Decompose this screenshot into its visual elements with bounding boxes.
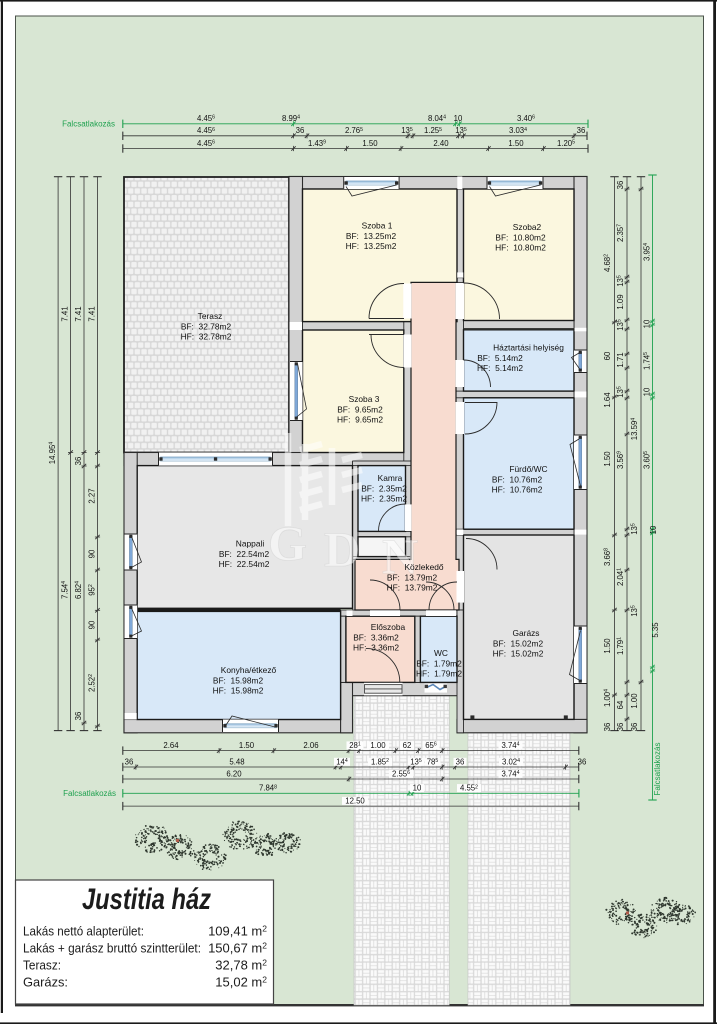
svg-text:HF: 1.79m2: HF: 1.79m2 bbox=[416, 669, 462, 679]
svg-text:36: 36 bbox=[74, 712, 83, 721]
svg-text:BF: 15.98m2: BF: 15.98m2 bbox=[213, 675, 264, 685]
svg-text:7.41: 7.41 bbox=[88, 306, 97, 321]
svg-text:90: 90 bbox=[88, 620, 97, 629]
svg-text:Nappali: Nappali bbox=[236, 539, 265, 549]
svg-text:5.35: 5.35 bbox=[651, 622, 660, 638]
svg-text:36: 36 bbox=[616, 181, 625, 190]
svg-text:G: G bbox=[268, 515, 307, 571]
svg-text:Kamra: Kamra bbox=[378, 473, 403, 483]
svg-text:HF: 5.14m2: HF: 5.14m2 bbox=[477, 363, 523, 373]
svg-text:36: 36 bbox=[578, 757, 587, 766]
svg-text:Falcsatlakozás: Falcsatlakozás bbox=[653, 743, 662, 796]
svg-text:150,67 m2: 150,67 m2 bbox=[208, 941, 267, 956]
svg-text:10: 10 bbox=[413, 784, 422, 793]
svg-text:32,78 m2: 32,78 m2 bbox=[215, 958, 267, 973]
svg-text:BF: 32.78m2: BF: 32.78m2 bbox=[181, 321, 232, 331]
svg-text:Konyha/étkező: Konyha/étkező bbox=[221, 665, 277, 675]
svg-text:HF: 9.65m2: HF: 9.65m2 bbox=[337, 415, 383, 425]
svg-text:Fürdő/WC: Fürdő/WC bbox=[509, 464, 547, 474]
svg-text:HF: 10.80m2: HF: 10.80m2 bbox=[495, 243, 546, 253]
svg-text:13.594: 13.594 bbox=[630, 418, 639, 441]
svg-text:10: 10 bbox=[454, 114, 463, 123]
svg-text:1.64: 1.64 bbox=[603, 392, 612, 408]
svg-text:12.50: 12.50 bbox=[345, 797, 365, 806]
svg-text:1.71: 1.71 bbox=[616, 352, 625, 367]
svg-text:Justitia ház: Justitia ház bbox=[82, 883, 211, 916]
svg-text:64: 64 bbox=[616, 700, 625, 709]
svg-text:5.48: 5.48 bbox=[229, 757, 244, 766]
svg-text:BF: 10.80m2: BF: 10.80m2 bbox=[495, 232, 546, 242]
svg-text:Lakás nettó alapterület:: Lakás nettó alapterület: bbox=[23, 924, 144, 939]
svg-text:Garázs: Garázs bbox=[513, 628, 540, 638]
svg-text:1.50: 1.50 bbox=[508, 139, 524, 148]
svg-text:1.50: 1.50 bbox=[362, 139, 378, 148]
svg-text:36: 36 bbox=[74, 457, 83, 466]
svg-text:HF: 13.25m2: HF: 13.25m2 bbox=[346, 241, 397, 251]
svg-text:10: 10 bbox=[643, 319, 652, 328]
svg-text:36: 36 bbox=[577, 126, 586, 135]
svg-text:10: 10 bbox=[649, 525, 658, 534]
svg-text:BF: 22.54m2: BF: 22.54m2 bbox=[219, 549, 270, 559]
svg-text:Háztartási helyiség: Háztartási helyiség bbox=[493, 343, 564, 353]
svg-text:BF: 3.36m2: BF: 3.36m2 bbox=[353, 632, 399, 642]
svg-text:Szoba2: Szoba2 bbox=[513, 222, 542, 232]
svg-text:1.09: 1.09 bbox=[616, 294, 625, 309]
svg-text:2.27: 2.27 bbox=[88, 488, 97, 503]
svg-text:Garázs:: Garázs: bbox=[23, 975, 68, 990]
svg-text:BF: 1.79m2: BF: 1.79m2 bbox=[416, 658, 462, 668]
svg-text:HF: 2.35m2: HF: 2.35m2 bbox=[361, 494, 407, 504]
svg-text:Falcsatlakozás: Falcsatlakozás bbox=[63, 789, 116, 798]
svg-text:Terasz: Terasz bbox=[198, 311, 223, 321]
svg-text:36: 36 bbox=[456, 757, 465, 766]
svg-text:HF: 3.36m2: HF: 3.36m2 bbox=[353, 643, 399, 653]
svg-text:36: 36 bbox=[296, 126, 305, 135]
svg-text:BF: 2.35m2: BF: 2.35m2 bbox=[361, 483, 407, 493]
svg-text:1.00: 1.00 bbox=[370, 741, 386, 750]
svg-text:BF: 15.02m2: BF: 15.02m2 bbox=[493, 638, 544, 648]
svg-text:HF: 13.79m2: HF: 13.79m2 bbox=[387, 583, 438, 593]
svg-text:1.00: 1.00 bbox=[630, 693, 639, 709]
svg-text:15,02 m2: 15,02 m2 bbox=[215, 975, 267, 990]
svg-text:90: 90 bbox=[88, 549, 97, 558]
svg-text:10: 10 bbox=[643, 387, 652, 396]
svg-text:HF: 32.78m2: HF: 32.78m2 bbox=[181, 332, 232, 342]
svg-text:Szoba 1: Szoba 1 bbox=[362, 221, 393, 231]
svg-text:Szoba 3: Szoba 3 bbox=[349, 394, 380, 404]
svg-text:1.50: 1.50 bbox=[239, 741, 255, 750]
svg-text:1.50: 1.50 bbox=[603, 451, 612, 467]
svg-text:60: 60 bbox=[603, 351, 612, 360]
svg-text:109,41 m2: 109,41 m2 bbox=[208, 924, 267, 939]
svg-text:HF: 15.98m2: HF: 15.98m2 bbox=[213, 686, 264, 696]
svg-text:62: 62 bbox=[403, 741, 412, 750]
svg-text:6.20: 6.20 bbox=[226, 769, 242, 778]
svg-text:D: D bbox=[324, 521, 360, 577]
svg-text:Előszoba: Előszoba bbox=[371, 622, 406, 632]
svg-text:14.954: 14.954 bbox=[48, 442, 57, 465]
svg-text:36: 36 bbox=[603, 723, 612, 732]
svg-text:BF: 9.65m2: BF: 9.65m2 bbox=[337, 404, 383, 414]
svg-text:36: 36 bbox=[630, 723, 639, 732]
svg-text:36: 36 bbox=[616, 723, 625, 732]
svg-text:2.06: 2.06 bbox=[303, 741, 318, 750]
svg-text:HF: 22.54m2: HF: 22.54m2 bbox=[219, 559, 270, 569]
svg-text:HF: 10.76m2: HF: 10.76m2 bbox=[492, 485, 543, 495]
svg-text:7.41: 7.41 bbox=[61, 306, 70, 321]
svg-text:7.41: 7.41 bbox=[74, 306, 83, 321]
svg-text:Lakás + garász bruttó szintter: Lakás + garász bruttó szintterület: bbox=[23, 941, 201, 956]
svg-text:Terasz:: Terasz: bbox=[23, 958, 61, 973]
svg-text:WC: WC bbox=[434, 648, 448, 658]
svg-text:36: 36 bbox=[125, 757, 134, 766]
svg-text:HF: 15.02m2: HF: 15.02m2 bbox=[493, 649, 544, 659]
svg-text:Falcsatlakozás: Falcsatlakozás bbox=[62, 120, 115, 129]
svg-text:2.64: 2.64 bbox=[163, 741, 179, 750]
svg-text:Közlekedő: Közlekedő bbox=[404, 562, 443, 572]
svg-text:2.40: 2.40 bbox=[433, 139, 449, 148]
svg-text:BF: 13.25m2: BF: 13.25m2 bbox=[346, 231, 397, 241]
svg-text:BF: 5.14m2: BF: 5.14m2 bbox=[477, 353, 523, 363]
svg-text:1.50: 1.50 bbox=[603, 638, 612, 654]
svg-text:BF: 10.76m2: BF: 10.76m2 bbox=[492, 474, 543, 484]
svg-text:BF: 13.79m2: BF: 13.79m2 bbox=[387, 572, 438, 582]
